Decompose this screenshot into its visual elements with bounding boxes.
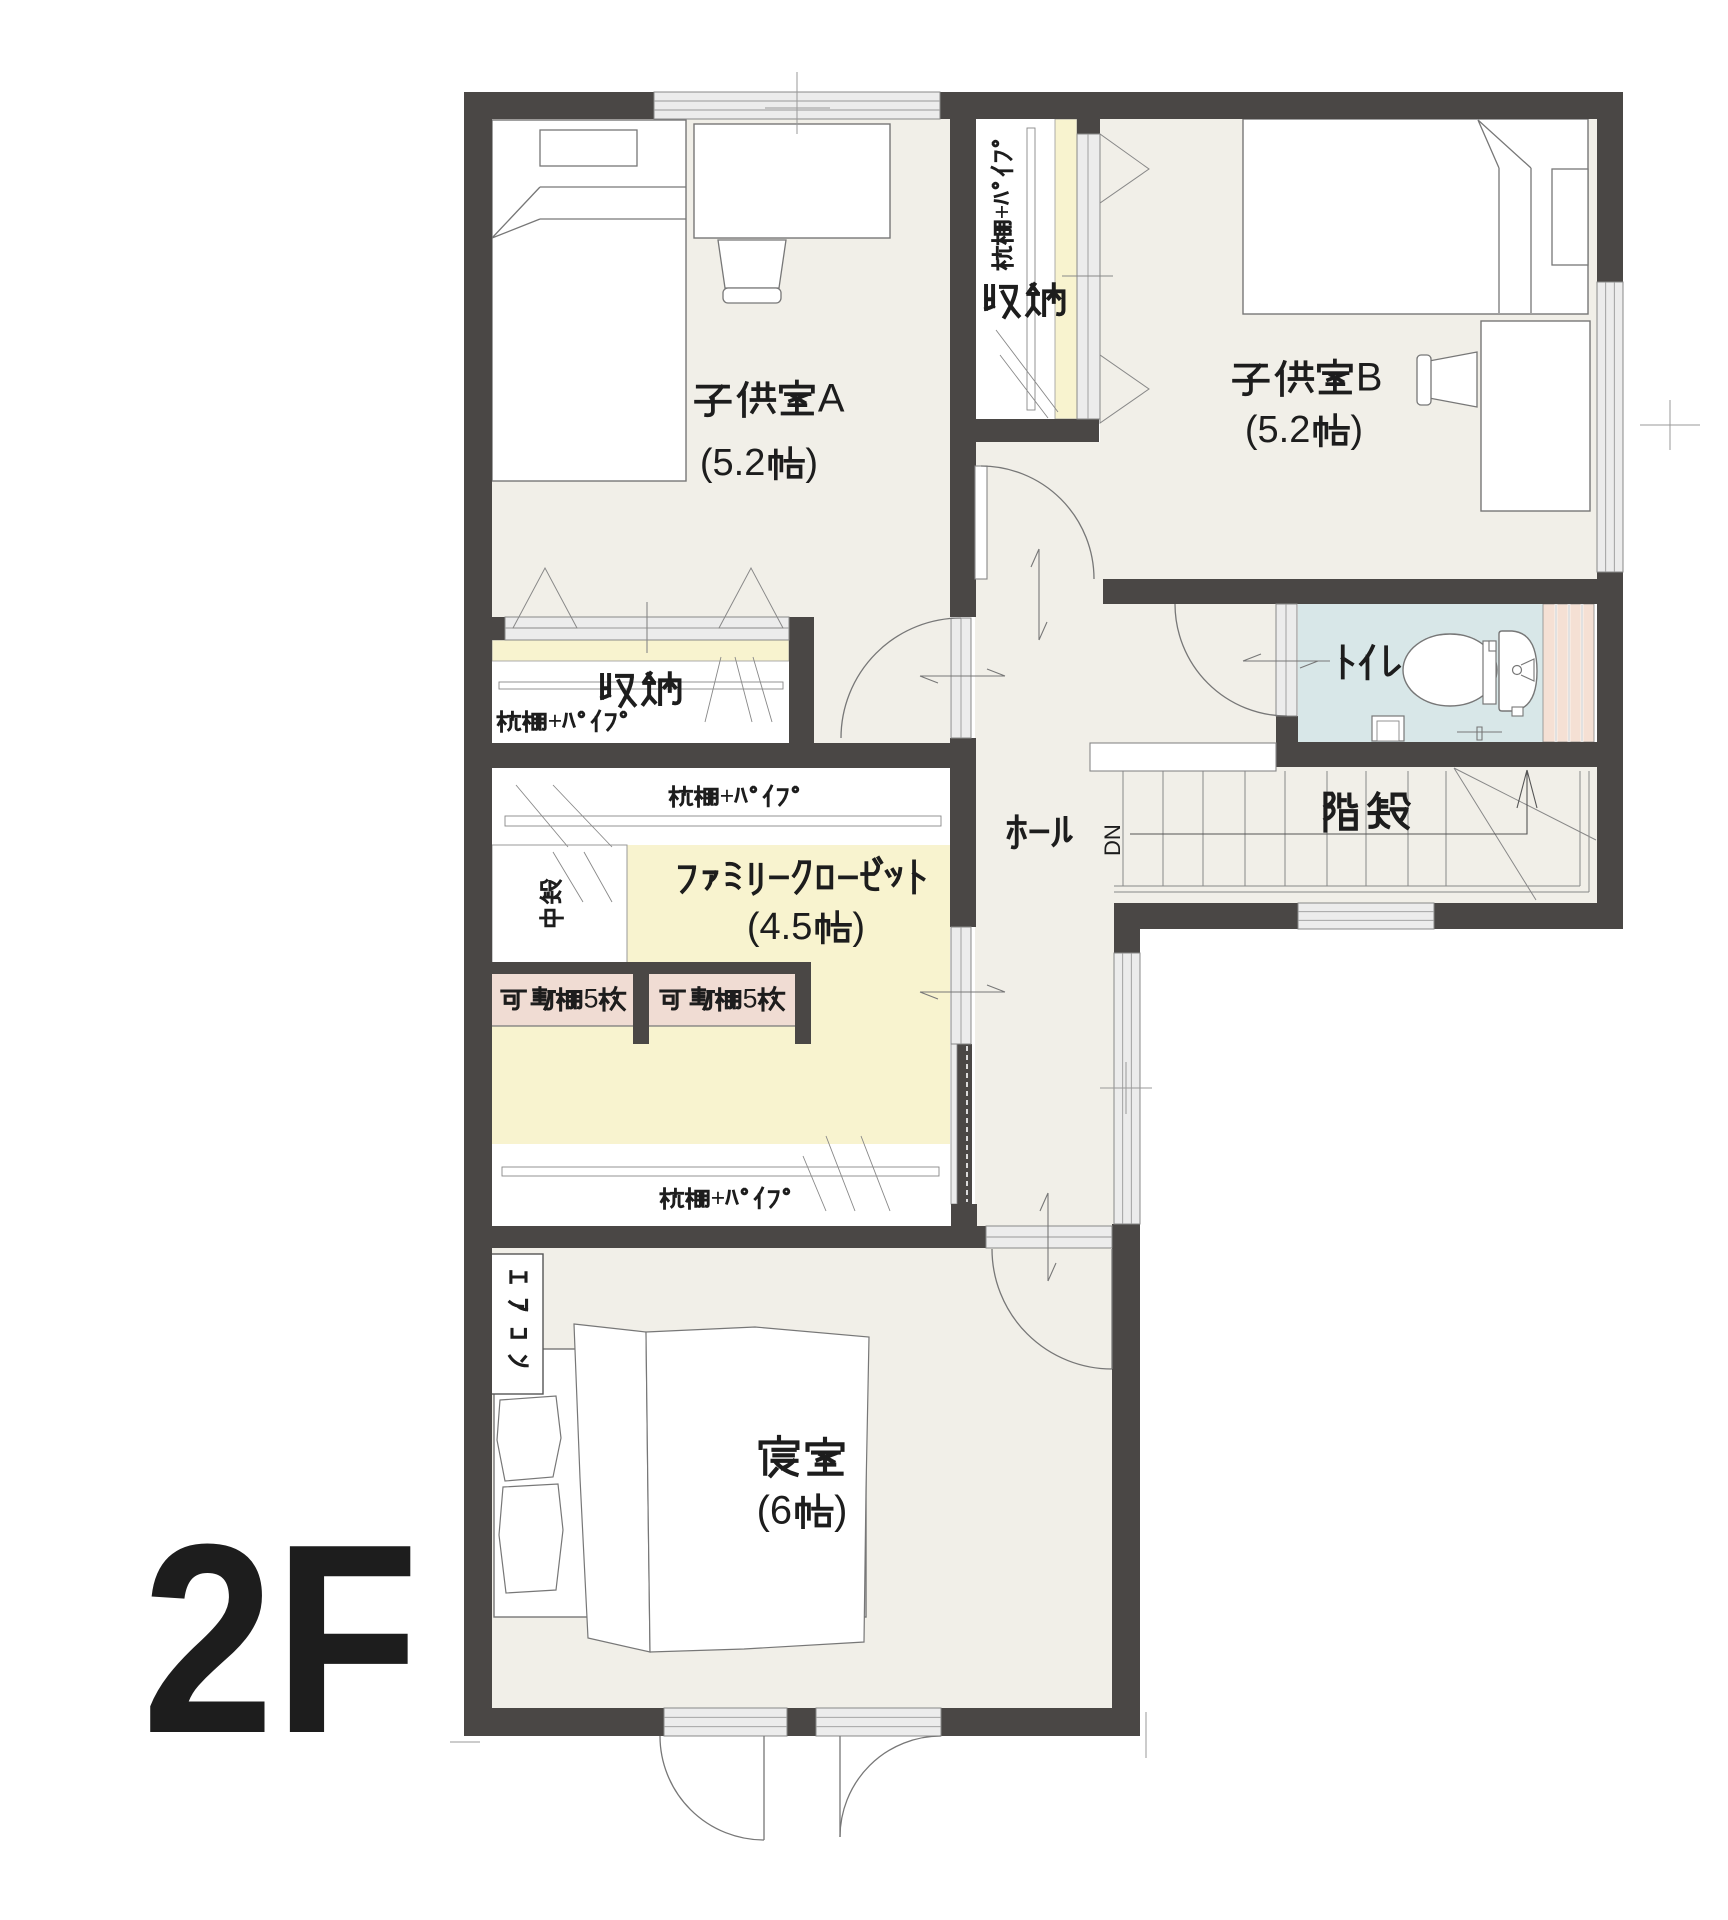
svg-text:B: B xyxy=(1356,355,1383,399)
svg-text:+: + xyxy=(989,205,1016,219)
svg-text:+: + xyxy=(720,783,734,810)
svg-text:): ) xyxy=(1350,409,1363,451)
svg-text:A: A xyxy=(818,376,845,420)
svg-text:(6: (6 xyxy=(757,1488,792,1532)
svg-text:+: + xyxy=(548,708,562,735)
svg-text:5: 5 xyxy=(584,984,599,1014)
svg-text:): ) xyxy=(805,442,818,484)
svg-text:DN: DN xyxy=(1100,824,1125,856)
svg-text:5: 5 xyxy=(743,984,758,1014)
svg-text:+: + xyxy=(711,1185,725,1212)
svg-text:2F: 2F xyxy=(142,1489,419,1790)
svg-text:): ) xyxy=(834,1488,847,1532)
svg-text:): ) xyxy=(852,906,865,948)
svg-text:(5.2: (5.2 xyxy=(700,442,765,484)
svg-text:(4.5: (4.5 xyxy=(747,906,812,948)
svg-text:(5.2: (5.2 xyxy=(1245,409,1310,451)
